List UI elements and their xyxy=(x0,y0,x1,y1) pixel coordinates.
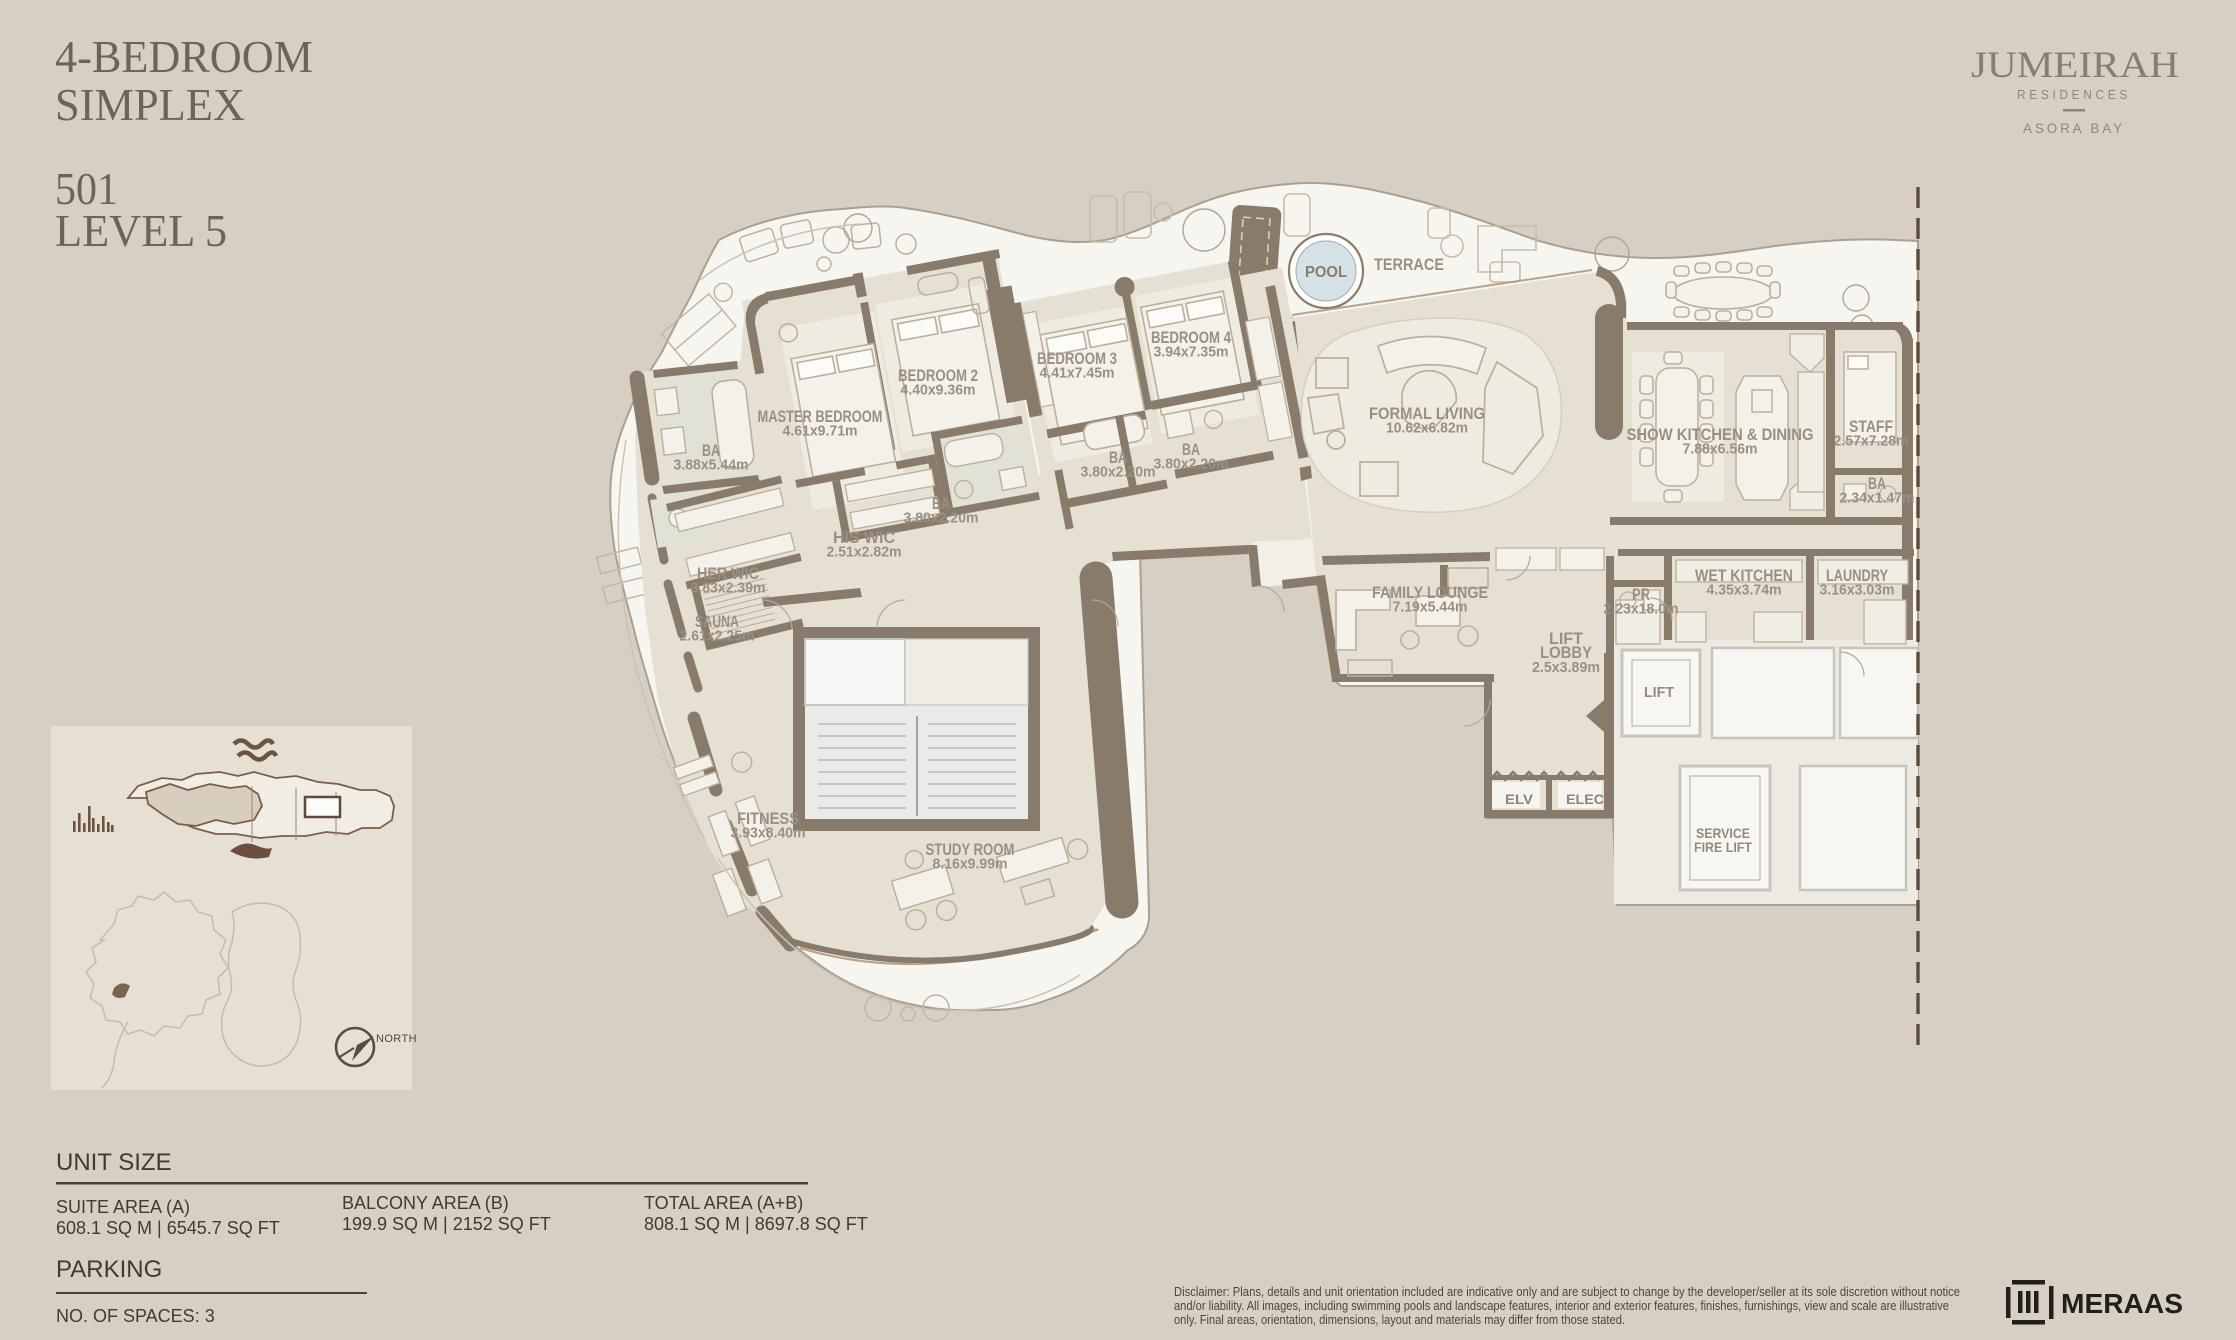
svg-text:3.80x2.20m: 3.80x2.20m xyxy=(1154,457,1229,473)
svg-text:3.93x8.40m: 3.93x8.40m xyxy=(731,826,806,842)
svg-text:BALCONY AREA (B): BALCONY AREA (B) xyxy=(342,1193,509,1213)
svg-text:2.23x18.0m: 2.23x18.0m xyxy=(1604,602,1679,618)
svg-text:UNIT SIZE: UNIT SIZE xyxy=(56,1149,172,1176)
svg-text:FIRE LIFT: FIRE LIFT xyxy=(1694,839,1752,855)
svg-text:POOL: POOL xyxy=(1305,264,1347,281)
svg-text:LEVEL 5: LEVEL 5 xyxy=(55,206,227,256)
svg-text:608.1 SQ M | 6545.7 SQ FT: 608.1 SQ M | 6545.7 SQ FT xyxy=(56,1218,280,1238)
svg-text:2.5x3.89m: 2.5x3.89m xyxy=(1532,660,1600,676)
svg-text:8.16x9.99m: 8.16x9.99m xyxy=(933,857,1008,873)
svg-text:ELV: ELV xyxy=(1505,792,1533,807)
svg-text:2.57x7.28m: 2.57x7.28m xyxy=(1834,434,1909,450)
svg-text:SIMPLEX: SIMPLEX xyxy=(55,79,245,130)
svg-text:808.1 SQ M | 8697.8 SQ FT: 808.1 SQ M | 8697.8 SQ FT xyxy=(644,1214,868,1234)
svg-text:7.19x5.44m: 7.19x5.44m xyxy=(1393,600,1468,616)
svg-text:199.9 SQ M | 2152 SQ FT: 199.9 SQ M | 2152 SQ FT xyxy=(342,1214,551,1234)
svg-text:3.80x2.20m: 3.80x2.20m xyxy=(1081,465,1156,481)
svg-text:JUMEIRAH: JUMEIRAH xyxy=(1971,45,2179,86)
svg-text:4-BEDROOM: 4-BEDROOM xyxy=(55,31,313,82)
svg-text:NO. OF SPACES: 3: NO. OF SPACES: 3 xyxy=(56,1306,215,1326)
svg-text:4.41x7.45m: 4.41x7.45m xyxy=(1040,366,1115,382)
svg-text:NORTH: NORTH xyxy=(376,1033,417,1045)
svg-text:4.40x9.36m: 4.40x9.36m xyxy=(901,383,976,399)
svg-text:SUITE AREA (A): SUITE AREA (A) xyxy=(56,1197,190,1217)
svg-text:4.35x3.74m: 4.35x3.74m xyxy=(1707,583,1782,599)
svg-text:3.16x3.03m: 3.16x3.03m xyxy=(1820,583,1895,599)
svg-text:ELEC: ELEC xyxy=(1566,792,1604,807)
svg-text:only. Final areas, orientation: only. Final areas, orientation, dimensio… xyxy=(1174,1313,1625,1327)
svg-text:Disclaimer: Plans, details and: Disclaimer: Plans, details and unit orie… xyxy=(1174,1285,1960,1299)
svg-text:7.88x6.56m: 7.88x6.56m xyxy=(1683,442,1758,458)
svg-text:LIFT: LIFT xyxy=(1644,684,1674,701)
svg-text:2.61x2.25m: 2.61x2.25m xyxy=(680,629,755,645)
svg-text:ASORA BAY: ASORA BAY xyxy=(2023,120,2125,136)
svg-text:PARKING: PARKING xyxy=(56,1256,162,1283)
svg-text:3.83x2.39m: 3.83x2.39m xyxy=(691,581,766,597)
svg-text:TERRACE: TERRACE xyxy=(1374,256,1444,274)
svg-text:MERAAS: MERAAS xyxy=(2061,1288,2183,1319)
svg-text:and/or liability. All images,: and/or liability. All images, including … xyxy=(1174,1299,1949,1313)
svg-text:4.61x9.71m: 4.61x9.71m xyxy=(783,424,858,440)
svg-text:2.34x1.47m: 2.34x1.47m xyxy=(1840,491,1915,507)
svg-text:RESIDENCES: RESIDENCES xyxy=(2017,87,2131,102)
svg-text:3.94x7.35m: 3.94x7.35m xyxy=(1154,345,1229,361)
svg-text:3.88x5.44m: 3.88x5.44m xyxy=(674,458,749,474)
svg-text:3.80x2.20m: 3.80x2.20m xyxy=(904,511,979,527)
svg-text:TOTAL AREA (A+B): TOTAL AREA (A+B) xyxy=(644,1193,803,1213)
svg-text:10.62x6.82m: 10.62x6.82m xyxy=(1386,421,1468,437)
svg-text:2.51x2.82m: 2.51x2.82m xyxy=(827,545,902,561)
